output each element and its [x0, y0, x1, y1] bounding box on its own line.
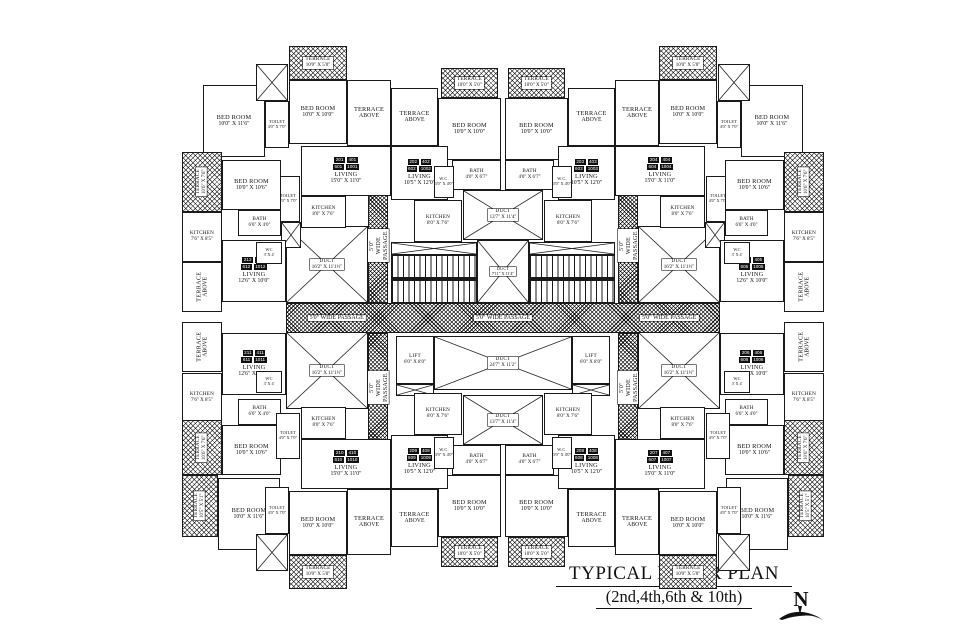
- kitchen-left-edge-1-dims: 7'6" X 8'5": [190, 237, 214, 243]
- terrace-above-tl-2-dims: ABOVE: [399, 117, 429, 123]
- lift-left: LIFT6'0" X 8'0": [396, 336, 434, 384]
- bath-bottom-1-label: BATH4'0" X 6'7": [466, 454, 488, 465]
- living-flat6-flat-numbers: 2064066061006: [736, 350, 767, 363]
- flat-number-chip: 406: [753, 350, 764, 356]
- duct-shaft-br-cross-icon: [719, 535, 749, 570]
- wc-right-1: WC3' X 4': [724, 242, 750, 264]
- living-flat7-label: 2074076071007LIVING15'0" X 11'0": [644, 450, 675, 477]
- bedroom-right-2-name: BED ROOM: [737, 443, 772, 450]
- living-flat9-flat-numbers: 2094096091009: [404, 448, 435, 461]
- flat-number-chip: 1001: [346, 164, 359, 170]
- flat-number-chip: 201: [334, 157, 345, 163]
- terrace-left-2-label: TERRACE10'6" X 7'6": [196, 433, 207, 462]
- terrace-right-2-dims: 10'6" X 7'6": [804, 435, 810, 460]
- flat-number-chip: 1010: [346, 457, 359, 463]
- passage-vert-left-bottom: 5'0" WIDE PASSAGE: [368, 333, 388, 443]
- living-flat10-dims: 15'0" X 11'0": [330, 471, 361, 477]
- bedroom-bottom-center-2-dims: 10'0" X 10'0": [519, 506, 554, 512]
- terrace-top-center-1-dims: 10'0" X 5'0": [457, 83, 482, 89]
- duct-left-bottom-dims: 16'2" X 11'1½": [312, 371, 343, 377]
- duct-right-bottom-label: DUCT16'2" X 11'1½": [662, 365, 697, 376]
- terrace-above-tr-2-label: TERRACEABOVE: [576, 110, 606, 124]
- living-flat1-label: 2014016011001LIVING15'0" X 11'0": [330, 157, 361, 184]
- bedroom-corner-tl-name: BED ROOM: [217, 114, 252, 121]
- terrace-left-1: TERRACE10'6" X 7'6": [182, 152, 222, 212]
- bath-right-2-dims: 6'6" X 4'0": [736, 412, 758, 418]
- bedroom-bl-2: BED ROOM10'0" X 10'0": [289, 491, 347, 555]
- terrace-top-center-1-label: TERRACE10'0" X 5'0": [455, 77, 484, 88]
- flat-number-chip: 402: [421, 159, 432, 165]
- living-flat7-dims: 15'0" X 11'0": [644, 471, 675, 477]
- kitchen-flat10-dims: 8'0" X 7'6": [311, 423, 335, 429]
- bath-top-2-label: BATH4'0" X 6'7": [519, 169, 541, 180]
- wc-right-1-label: WC3' X 4': [732, 248, 743, 258]
- terrace-above-bl-2-name: TERRACE: [399, 511, 429, 518]
- toilet-left-1-label: TOILET4'0" X 7'0": [279, 194, 297, 204]
- living-flat12-dims: 12'6" X 10'0": [238, 278, 269, 284]
- living-flat4-name: LIVING: [644, 171, 675, 178]
- flat-number-chip: 208: [575, 448, 586, 454]
- kitchen-left-edge-2: KITCHEN7'6" X 8'5": [182, 373, 222, 423]
- lift-right: LIFT6'0" X 8'0": [572, 336, 610, 384]
- terrace-top-center-2: TERRACE10'0" X 5'0": [508, 68, 565, 98]
- living-flat3-flat-numbers: 2034036031003: [571, 159, 602, 172]
- terrace-top-center-2-label: TERRACE10'0" X 5'0": [522, 77, 551, 88]
- terrace-br-dims: 10'0" X 5'0": [675, 572, 700, 578]
- toilet-tl: TOILET4'0" X 7'0": [265, 101, 289, 148]
- terrace-right-2: TERRACE10'6" X 7'6": [784, 420, 824, 475]
- terrace-above-tl-1-dims: ABOVE: [354, 113, 384, 119]
- bedroom-corner-bl-label: BED ROOM10'0" X 11'6": [232, 507, 267, 521]
- bedroom-corner-tl-dims: 10'0" X 11'6": [217, 121, 252, 127]
- wc-bottom-2-label: W.C.3'0" X 4'0": [553, 448, 571, 458]
- bath-bottom-2: BATH4'0" X 6'7": [505, 445, 554, 475]
- kitchen-flat2: KITCHEN8'0" X 7'6": [414, 200, 462, 242]
- bedroom-tl-2-dims: 10'0" X 10'0": [301, 112, 336, 118]
- bedroom-tr-2-label: BED ROOM10'0" X 10'0": [671, 105, 706, 119]
- lift-right-dims: 6'0" X 8'0": [580, 360, 602, 366]
- living-flat5-name: LIVING: [736, 271, 767, 278]
- bedroom-right-1-name: BED ROOM: [737, 178, 772, 185]
- flat-number-chip: 608: [574, 455, 585, 461]
- flat-number-chip: 210: [334, 450, 345, 456]
- bedroom-left-2-dims: 10'0" X 10'6": [234, 450, 269, 456]
- living-flat10: 2104106101010LIVING15'0" X 11'0": [301, 439, 391, 489]
- terrace-above-right-1-label: TERRACEABOVE: [797, 272, 811, 302]
- bedroom-corner-tr-label: BED ROOM10'0" X 11'6": [755, 114, 790, 128]
- flat-number-chip: 1008: [586, 455, 599, 461]
- bedroom-bottom-center-1-dims: 10'0" X 10'0": [452, 506, 487, 512]
- wc-top-2-dims: 3'0" X 4'0": [553, 182, 571, 187]
- living-flat9-label: 2094096091009LIVING10'5" X 12'0": [404, 448, 435, 475]
- kitchen-flat7-label: KITCHEN8'0" X 7'6": [670, 417, 694, 428]
- terrace-right-1-label: TERRACE10'6" X 7'6": [798, 167, 809, 196]
- passage-vert-right-top-name: 5'0" WIDE PASSAGE: [617, 231, 638, 260]
- bedroom-right-2-dims: 10'0" X 10'6": [737, 450, 772, 456]
- terrace-above-left-2-label: TERRACEABOVE: [195, 332, 209, 362]
- toilet-br-label: TOILET4'0" X 7'0": [720, 506, 738, 516]
- flat-number-chip: 202: [408, 159, 419, 165]
- terrace-above-bl-1-name: TERRACE: [354, 515, 384, 522]
- bedroom-tr-2-dims: 10'0" X 10'0": [671, 112, 706, 118]
- living-flat7-name: LIVING: [644, 464, 675, 471]
- terrace-above-tr-1-dims: ABOVE: [622, 113, 652, 119]
- kitchen-flat1: KITCHEN8'0" X 7'6": [301, 196, 346, 228]
- terrace-above-tr-1-label: TERRACEABOVE: [622, 106, 652, 120]
- flat-number-chip: 403: [588, 159, 599, 165]
- terrace-above-bl-2: TERRACEABOVE: [391, 489, 438, 547]
- living-flat1-flat-numbers: 2014016011001: [330, 157, 361, 170]
- flat-number-chip: 1002: [419, 166, 432, 172]
- duct-center-top-label: DUCT13'7" X 11'4": [488, 209, 519, 220]
- wc-bottom-1-label: W.C.3'0" X 4'0": [435, 448, 453, 458]
- duct-left-bottom: DUCT16'2" X 11'1½": [286, 332, 368, 409]
- flat-number-chip: 409: [421, 448, 432, 454]
- bath-right-1-label: BATH6'6" X 4'0": [736, 217, 758, 228]
- duct-stairwell: DUCT7'11" X 11'4": [477, 240, 529, 303]
- kitchen-flat10: KITCHEN8'0" X 7'6": [301, 407, 346, 439]
- floor-plan-canvas: 5'0" WIDE PASSAGE5'0" WIDE PASSAGE5'0" W…: [0, 0, 957, 625]
- living-flat1-name: LIVING: [330, 171, 361, 178]
- terrace-above-right-2-dims: ABOVE: [804, 332, 810, 362]
- kitchen-left-edge-2-dims: 7'6" X 8'5": [190, 398, 214, 404]
- duct-center-main: DUCT24'7" X 11'2": [434, 336, 572, 390]
- living-flat7: 2074076071007LIVING15'0" X 11'0": [615, 439, 705, 489]
- duct-stairwell-dims: 7'11" X 11'4": [492, 272, 514, 277]
- toilet-bl-dims: 4'0" X 7'0": [268, 511, 286, 516]
- flat-number-chip: 407: [661, 450, 672, 456]
- wc-top-2: W.C.3'0" X 4'0": [552, 166, 572, 198]
- kitchen-left-edge-1-label: KITCHEN7'6" X 8'5": [190, 231, 214, 242]
- toilet-left-2: TOILET4'0" X 7'0": [276, 413, 300, 459]
- living-flat4: 2044046041004LIVING15'0" X 11'0": [615, 146, 705, 196]
- terrace-bottom-center-1: TERRACE10'0" X 5'0": [441, 537, 498, 567]
- flat-number-chip: 601: [333, 164, 344, 170]
- terrace-above-left-1-label: TERRACEABOVE: [195, 272, 209, 302]
- toilet-left-2-label: TOILET4'0" X 7'0": [279, 431, 297, 441]
- terrace-above-tl-2: TERRACEABOVE: [391, 88, 438, 146]
- bath-left-2-dims: 6'6" X 4'0": [249, 412, 271, 418]
- bath-left-1: BATH6'6" X 4'0": [238, 210, 281, 236]
- flat-number-chip: 612: [241, 264, 252, 270]
- terrace-above-right-2-label: TERRACEABOVE: [797, 332, 811, 362]
- terrace-above-bl-2-dims: ABOVE: [399, 518, 429, 524]
- terrace-bottom-center-1-dims: 10'0" X 5'0": [457, 552, 482, 558]
- flat-number-chip: 1004: [660, 164, 673, 170]
- terrace-right-1-dims: 10'6" X 7'6": [804, 169, 810, 194]
- living-flat2-dims: 10'5" X 12'0": [404, 180, 435, 186]
- north-indicator: N: [778, 590, 824, 622]
- terrace-above-tr-2-name: TERRACE: [576, 110, 606, 117]
- flat-number-chip: 404: [661, 157, 672, 163]
- duct-strip-top-left: [391, 242, 477, 255]
- bath-right-1: BATH6'6" X 4'0": [725, 210, 768, 236]
- toilet-tr: TOILET4'0" X 7'0": [717, 101, 741, 148]
- bedroom-corner-bl-name: BED ROOM: [232, 507, 267, 514]
- bedroom-left-2-label: BED ROOM10'0" X 10'6": [234, 443, 269, 457]
- bath-right-1-dims: 6'6" X 4'0": [736, 223, 758, 229]
- terrace-above-br-2: TERRACEABOVE: [568, 489, 615, 547]
- duct-left-top-label: DUCT16'2" X 11'1½": [310, 259, 345, 270]
- flat-number-chip: 207: [648, 450, 659, 456]
- terrace-above-right-1-dims: ABOVE: [804, 272, 810, 302]
- terrace-above-tl-1-name: TERRACE: [354, 106, 384, 113]
- duct-strip-top-right: [529, 242, 615, 255]
- flat-number-chip: 1003: [586, 166, 599, 172]
- living-flat10-flat-numbers: 2104106101010: [330, 450, 361, 463]
- bedroom-right-2: BED ROOM10'0" X 10'6": [725, 425, 784, 475]
- living-flat4-flat-numbers: 2044046041004: [644, 157, 675, 170]
- bath-left-1-dims: 6'6" X 4'0": [249, 223, 271, 229]
- kitchen-flat4-label: KITCHEN8'0" X 7'6": [670, 206, 694, 217]
- bedroom-top-center-1-label: BED ROOM10'0" X 10'0": [452, 122, 487, 136]
- staircase-right: [529, 255, 615, 303]
- living-flat3-label: 2034036031003LIVING10'5" X 12'0": [571, 159, 602, 186]
- living-flat2-flat-numbers: 2024026021002: [404, 159, 435, 172]
- flat-number-chip: 408: [588, 448, 599, 454]
- terrace-left-2-dims: 10'6" X 7'6": [202, 435, 208, 460]
- terrace-top-center-1: TERRACE10'0" X 5'0": [441, 68, 498, 98]
- kitchen-right-edge-2-label: KITCHEN7'6" X 8'5": [792, 392, 816, 403]
- duct-center-main-dims: 24'7" X 11'2": [490, 363, 517, 369]
- kitchen-flat3: KITCHEN8'0" X 7'6": [544, 200, 592, 242]
- living-flat8-dims: 10'5" X 12'0": [571, 469, 602, 475]
- terrace-bl-label: TERRACE10'0" X 5'0": [303, 566, 332, 577]
- bath-top-2: BATH4'0" X 6'7": [505, 160, 554, 190]
- living-flat5-dims: 12'6" X 10'0": [736, 278, 767, 284]
- living-flat8-flat-numbers: 2084086081008: [571, 448, 602, 461]
- bedroom-bl-2-dims: 10'0" X 10'0": [301, 523, 336, 529]
- kitchen-flat7-dims: 8'0" X 7'6": [670, 423, 694, 429]
- living-flat7-flat-numbers: 2074076071007: [644, 450, 675, 463]
- terrace-left-3-label: TERRACE10'5" X 5'1": [194, 491, 205, 520]
- terrace-bottom-center-2-dims: 10'0" X 5'0": [524, 552, 549, 558]
- wc-right-2: WC3' X 4': [724, 371, 750, 393]
- living-flat3-dims: 10'5" X 12'0": [571, 180, 602, 186]
- terrace-above-bl-1-dims: ABOVE: [354, 522, 384, 528]
- bath-top-1-dims: 4'0" X 6'7": [466, 175, 488, 181]
- living-flat8-label: 2084086081008LIVING10'5" X 12'0": [571, 448, 602, 475]
- flat-number-chip: 610: [333, 457, 344, 463]
- living-flat2-name: LIVING: [404, 173, 435, 180]
- terrace-left-2: TERRACE10'6" X 7'6": [182, 420, 222, 475]
- flat-number-chip: 410: [347, 450, 358, 456]
- terrace-br-label: TERRACE10'0" X 5'0": [673, 566, 702, 577]
- living-flat10-label: 2104106101010LIVING15'0" X 11'0": [330, 450, 361, 477]
- duct-center-top-dims: 13'7" X 11'4": [490, 215, 517, 221]
- bedroom-tl-2: BED ROOM10'0" X 10'0": [289, 80, 347, 144]
- bedroom-bl-2-name: BED ROOM: [301, 516, 336, 523]
- terrace-bottom-center-2-label: TERRACE10'0" X 5'0": [522, 546, 551, 557]
- bedroom-bottom-center-1-name: BED ROOM: [452, 499, 487, 506]
- duct-shaft-tr: [718, 64, 750, 101]
- kitchen-flat3-dims: 8'0" X 7'6": [556, 221, 580, 227]
- bedroom-top-center-2-name: BED ROOM: [519, 122, 554, 129]
- bedroom-tr-2: BED ROOM10'0" X 10'0": [659, 80, 717, 144]
- living-flat9-name: LIVING: [404, 462, 435, 469]
- lift-left-dims: 6'0" X 8'0": [404, 360, 426, 366]
- bath-left-1-label: BATH6'6" X 4'0": [249, 217, 271, 228]
- bedroom-right-2-label: BED ROOM10'0" X 10'6": [737, 443, 772, 457]
- duct-stairwell-label: DUCT7'11" X 11'4": [490, 267, 516, 277]
- terrace-above-right-2-name: TERRACE: [797, 332, 804, 362]
- terrace-above-left-1: TERRACEABOVE: [182, 262, 222, 312]
- bath-top-1: BATH4'0" X 6'7": [452, 160, 501, 190]
- wc-bottom-1-dims: 3'0" X 4'0": [435, 453, 453, 458]
- bath-left-2: BATH6'6" X 4'0": [238, 399, 281, 425]
- toilet-right-2-dims: 4'0" X 7'0": [709, 436, 727, 441]
- living-flat3-name: LIVING: [571, 173, 602, 180]
- passage-vert-right-top: 5'0" WIDE PASSAGE: [618, 188, 638, 303]
- duct-shaft-bl: [256, 534, 288, 571]
- terrace-above-br-2-label: TERRACEABOVE: [576, 511, 606, 525]
- flat-number-chip: 203: [575, 159, 586, 165]
- bedroom-tl-2-label: BED ROOM10'0" X 10'0": [301, 105, 336, 119]
- passage-vert-left-top-label: 5'0" WIDE PASSAGE: [367, 229, 388, 262]
- terrace-left-3: TERRACE10'5" X 5'1": [182, 475, 218, 537]
- bedroom-corner-tr-dims: 10'0" X 11'6": [755, 121, 790, 127]
- wc-left-2: WC3' X 4': [256, 371, 282, 393]
- bath-right-2: BATH6'6" X 4'0": [725, 399, 768, 425]
- bedroom-left-1-name: BED ROOM: [234, 178, 269, 185]
- flat-number-chip: 1012: [254, 264, 267, 270]
- toilet-tl-dims: 4'0" X 7'0": [268, 125, 286, 130]
- terrace-above-left-1-dims: ABOVE: [202, 272, 208, 302]
- bedroom-corner-tl-label: BED ROOM10'0" X 11'6": [217, 114, 252, 128]
- toilet-bl: TOILET4'0" X 7'0": [265, 487, 289, 534]
- kitchen-left-edge-2-label: KITCHEN7'6" X 8'5": [190, 392, 214, 403]
- flat-number-chip: 411: [255, 350, 265, 356]
- bedroom-left-2: BED ROOM10'0" X 10'6": [222, 425, 281, 475]
- passage-vert-left-top: 5'0" WIDE PASSAGE: [368, 188, 388, 303]
- terrace-above-tr-1-name: TERRACE: [622, 106, 652, 113]
- terrace-bottom-center-2: TERRACE10'0" X 5'0": [508, 537, 565, 567]
- terrace-above-left-2-dims: ABOVE: [202, 332, 208, 362]
- terrace-above-br-2-name: TERRACE: [576, 511, 606, 518]
- kitchen-flat8-dims: 8'0" X 7'6": [556, 414, 580, 420]
- flat-number-chip: 211: [243, 350, 253, 356]
- terrace-right-3-dims: 10'5" X 5'1": [806, 493, 812, 518]
- toilet-left-2-dims: 4'0" X 7'0": [279, 436, 297, 441]
- duct-right-top-dims: 16'2" X 11'1½": [664, 265, 695, 271]
- passage-vert-right-bottom: 5'0" WIDE PASSAGE: [618, 333, 638, 443]
- living-flat1: 2014016011001LIVING15'0" X 11'0": [301, 146, 391, 196]
- terrace-tl-dims: 10'0" X 5'0": [305, 63, 330, 69]
- kitchen-flat9-dims: 8'0" X 7'6": [426, 414, 450, 420]
- terrace-tr: TERRACE10'0" X 5'0": [659, 46, 717, 80]
- terrace-top-center-2-dims: 10'0" X 5'0": [524, 83, 549, 89]
- wc-left-2-label: WC3' X 4': [264, 377, 275, 387]
- duct-strip-top-left-cross-icon: [392, 243, 476, 254]
- bedroom-corner-tr: BED ROOM10'0" X 11'6": [741, 85, 803, 157]
- bedroom-left-1: BED ROOM10'0" X 10'6": [222, 160, 281, 210]
- wc-right-2-label: WC3' X 4': [732, 377, 743, 387]
- passage-vert-right-bottom-name: 5'0" WIDE PASSAGE: [617, 374, 638, 403]
- kitchen-flat3-label: KITCHEN8'0" X 7'6": [556, 215, 580, 226]
- terrace-above-br-1-label: TERRACEABOVE: [622, 515, 652, 529]
- terrace-above-bl-2-label: TERRACEABOVE: [399, 511, 429, 525]
- toilet-right-2: TOILET4'0" X 7'0": [706, 413, 730, 459]
- duct-shaft-tr-cross-icon: [719, 65, 749, 100]
- kitchen-right-edge-1: KITCHEN7'6" X 8'5": [784, 212, 824, 262]
- duct-shaft-bl-cross-icon: [257, 535, 287, 570]
- passage-vert-left-top-name: 5'0" WIDE PASSAGE: [367, 231, 388, 260]
- kitchen-right-edge-1-label: KITCHEN7'6" X 8'5": [792, 231, 816, 242]
- bedroom-top-center-1-dims: 10'0" X 10'0": [452, 129, 487, 135]
- kitchen-flat1-dims: 8'0" X 7'6": [311, 212, 335, 218]
- flat-number-chip: 206: [740, 350, 751, 356]
- kitchen-right-edge-2-dims: 7'6" X 8'5": [792, 398, 816, 404]
- terrace-bl: TERRACE10'0" X 5'0": [289, 555, 347, 589]
- bedroom-tl-2-name: BED ROOM: [301, 105, 336, 112]
- bedroom-right-1: BED ROOM10'0" X 10'6": [725, 160, 784, 210]
- living-flat2-label: 2024026021002LIVING10'5" X 12'0": [404, 159, 435, 186]
- terrace-left-1-label: TERRACE10'6" X 7'6": [196, 167, 207, 196]
- wc-top-2-label: W.C.3'0" X 4'0": [553, 177, 571, 187]
- wc-bottom-2-dims: 3'0" X 4'0": [553, 453, 571, 458]
- toilet-right-2-label: TOILET4'0" X 7'0": [709, 431, 727, 441]
- kitchen-flat9-label: KITCHEN8'0" X 7'6": [426, 408, 450, 419]
- flat-number-chip: 1007: [660, 457, 673, 463]
- toilet-br-dims: 4'0" X 7'0": [720, 511, 738, 516]
- bath-bottom-1: BATH4'0" X 6'7": [452, 445, 501, 475]
- terrace-tl-label: TERRACE10'0" X 5'0": [303, 57, 332, 68]
- terrace-tr-label: TERRACE10'0" X 5'0": [673, 57, 702, 68]
- kitchen-left-edge-1: KITCHEN7'6" X 8'5": [182, 212, 222, 262]
- toilet-tl-label: TOILET4'0" X 7'0": [268, 120, 286, 130]
- bedroom-left-1-dims: 10'0" X 10'6": [234, 185, 269, 191]
- terrace-above-br-1-name: TERRACE: [622, 515, 652, 522]
- bath-bottom-1-dims: 4'0" X 6'7": [466, 460, 488, 466]
- flat-number-chip: 1009: [419, 455, 432, 461]
- bedroom-left-2-name: BED ROOM: [234, 443, 269, 450]
- wc-right-1-dims: 3' X 4': [732, 253, 743, 258]
- terrace-left-3-dims: 10'5" X 5'1": [200, 493, 206, 518]
- kitchen-flat10-label: KITCHEN8'0" X 7'6": [311, 417, 335, 428]
- living-flat12-name: LIVING: [238, 271, 269, 278]
- terrace-tl: TERRACE10'0" X 5'0": [289, 46, 347, 80]
- terrace-bottom-center-1-label: TERRACE10'0" X 5'0": [455, 546, 484, 557]
- terrace-right-3-label: TERRACE10'5" X 5'1": [800, 491, 811, 520]
- flat-number-chip: 405: [753, 257, 764, 263]
- staircase-left: [391, 255, 477, 303]
- flat-number-chip: 209: [408, 448, 419, 454]
- wc-right-2-dims: 3' X 4': [732, 382, 743, 387]
- duct-shaft-br: [718, 534, 750, 571]
- passage-horizontal-label-2: 5'0" WIDE PASSAGE: [474, 315, 532, 321]
- terrace-above-right-1-name: TERRACE: [797, 272, 804, 302]
- terrace-above-br-1-dims: ABOVE: [622, 522, 652, 528]
- passage-vert-left-bottom-name: 5'0" WIDE PASSAGE: [367, 374, 388, 403]
- terrace-bl-dims: 10'0" X 5'0": [305, 572, 330, 578]
- duct-center-bottom-dims: 13'7" X 11'4": [490, 420, 517, 426]
- bath-top-2-dims: 4'0" X 6'7": [519, 175, 541, 181]
- flat-number-chip: 606: [739, 357, 750, 363]
- wc-left-2-dims: 3' X 4': [264, 382, 275, 387]
- kitchen-flat4: KITCHEN8'0" X 7'6": [660, 196, 705, 228]
- bedroom-top-center-2-label: BED ROOM10'0" X 10'0": [519, 122, 554, 136]
- toilet-tr-label: TOILET4'0" X 7'0": [720, 120, 738, 130]
- flat-number-chip: 401: [347, 157, 358, 163]
- flat-number-chip: 611: [241, 357, 251, 363]
- duct-center-top: DUCT13'7" X 11'4": [463, 190, 543, 240]
- bedroom-top-center-2-dims: 10'0" X 10'0": [519, 129, 554, 135]
- living-flat11-flat-numbers: 2114116111011: [238, 350, 269, 363]
- wc-left-1-label: WC3' X 4': [264, 248, 275, 258]
- flat-number-chip: 609: [407, 455, 418, 461]
- wc-left-1: WC3' X 4': [256, 242, 282, 264]
- duct-left-top-dims: 16'2" X 11'1½": [312, 265, 343, 271]
